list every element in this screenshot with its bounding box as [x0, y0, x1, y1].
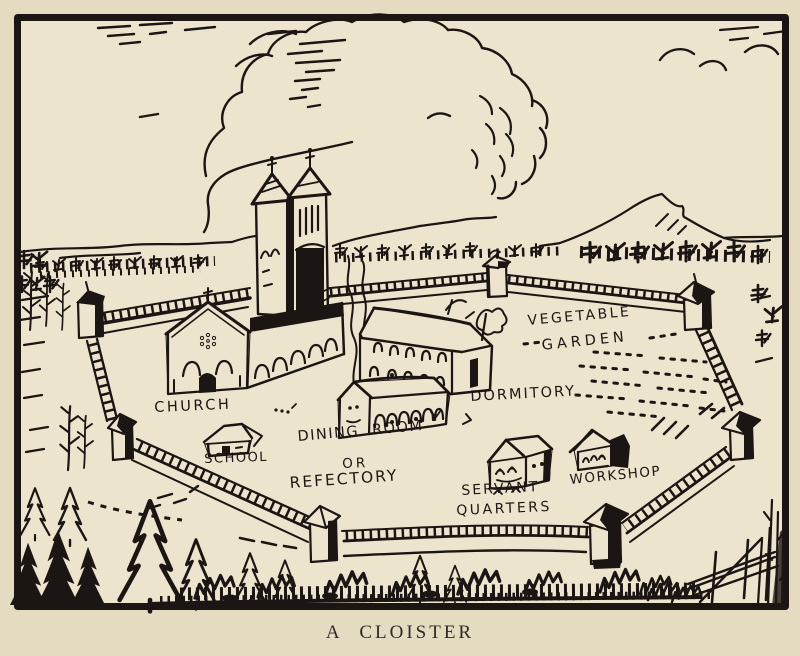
- book-page: CHURCH SCHOOL DINING ROOM OR REFECTORY D…: [0, 0, 800, 656]
- figure-caption: A CLOISTER: [0, 622, 800, 644]
- label-church: CHURCH: [154, 397, 232, 416]
- cloister-illustration: [0, 0, 800, 656]
- label-school: SCHOOL: [204, 450, 268, 467]
